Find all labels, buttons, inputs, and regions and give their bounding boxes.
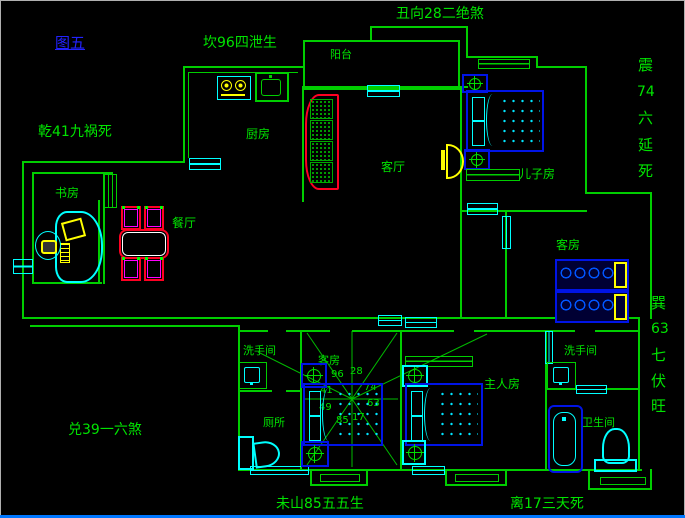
shelf: [466, 169, 520, 181]
wall: [32, 172, 113, 174]
basin: [553, 367, 569, 383]
wall: [286, 330, 302, 332]
wall: [466, 56, 538, 58]
ceiling-fan-icon: [469, 78, 481, 90]
faucet-icon: [269, 75, 272, 78]
annotation-top-left: 坎96四泄生: [203, 36, 277, 50]
room-label-washroom-right: 洗手间: [564, 345, 597, 356]
wall: [22, 161, 185, 163]
pillow: [309, 391, 321, 416]
keyboard-icon: [60, 243, 70, 263]
frame-left: [0, 0, 1, 518]
room-label-sons-room: 儿子房: [519, 168, 555, 180]
louver-door: [103, 174, 117, 208]
mattress: [336, 389, 378, 441]
drain-icon: [562, 417, 566, 421]
pillow: [472, 121, 485, 146]
ceiling-fan-icon: [471, 154, 483, 166]
balcony-outline: [303, 40, 460, 90]
porch-wall: [650, 469, 652, 490]
wall: [587, 192, 652, 194]
window: [405, 317, 437, 328]
blanket-fold: [486, 94, 499, 146]
room-label-living: 客厅: [381, 161, 405, 173]
wall: [460, 86, 462, 212]
floorplan-canvas[interactable]: 图五 坎96四泄生 丑向28二绝煞 乾41九祸死 兑39一六煞 未山85五五生 …: [0, 0, 685, 518]
dining-chair: [144, 206, 164, 230]
wall: [474, 330, 547, 332]
wall: [30, 325, 240, 327]
wall: [183, 66, 304, 68]
wall: [22, 161, 24, 319]
pillow: [411, 416, 423, 441]
pillow: [472, 97, 485, 121]
desk-chair: [35, 231, 61, 260]
annotation-left-upper: 乾41九祸死: [38, 125, 112, 139]
porch-wall: [366, 469, 368, 485]
table-inner: [122, 232, 166, 256]
dining-chair: [121, 257, 141, 281]
window: [502, 216, 511, 249]
wall: [103, 205, 105, 284]
window: [367, 85, 400, 97]
burner-icon: [235, 80, 246, 91]
porch-wall: [505, 469, 507, 485]
ceiling-fan-icon: [408, 369, 422, 383]
ceiling-fan-icon: [307, 369, 321, 383]
room-label-bathroom: 卫生间: [582, 417, 615, 428]
wall: [595, 330, 640, 332]
wall: [22, 317, 640, 319]
wall: [460, 212, 462, 319]
nightstand: [402, 440, 426, 465]
ceiling-fan-icon: [408, 446, 422, 460]
wall: [402, 330, 454, 332]
pillow: [614, 262, 627, 288]
dining-chair: [121, 206, 141, 230]
mattress: [438, 389, 478, 441]
wall: [286, 390, 302, 392]
window: [576, 385, 607, 394]
bed-guest-center: [303, 383, 383, 446]
nightstand: [464, 149, 490, 170]
bathtub: [548, 405, 583, 473]
nightstand: [301, 441, 329, 467]
wall: [650, 192, 652, 319]
bed-guest-right: [555, 259, 629, 291]
wall: [302, 86, 304, 202]
basin: [244, 367, 260, 383]
dining-chair: [144, 257, 164, 281]
window: [467, 203, 498, 215]
wall: [302, 330, 330, 332]
bed-sons-room: [466, 90, 544, 152]
annotation-bottom-right: 离17三天死: [510, 497, 584, 511]
wall: [352, 330, 402, 332]
window: [189, 158, 221, 170]
porch-wall: [310, 484, 368, 486]
plant-rack: [305, 94, 339, 190]
plant-box: [310, 99, 333, 119]
room-label-dining: 餐厅: [172, 217, 196, 229]
porch-wall: [445, 484, 507, 486]
mattress-coils: [559, 263, 615, 283]
toilet-base: [594, 459, 637, 472]
porch-wall: [310, 469, 312, 485]
drain-icon: [559, 382, 562, 385]
chair-seat: [41, 240, 57, 254]
porch-step: [600, 477, 646, 485]
wall: [466, 26, 468, 58]
annotation-left-lower: 兑39一六煞: [68, 423, 142, 437]
washbasin: [547, 362, 576, 389]
wall-lamp-icon: [441, 150, 445, 170]
room-label-kitchen: 厨房: [246, 128, 270, 140]
stove-trim: [221, 94, 245, 96]
wall-niche: [478, 59, 530, 69]
wall: [605, 388, 638, 390]
mattress: [500, 96, 540, 146]
bed-guest-right: [555, 291, 629, 323]
room-label-guest-right: 客房: [556, 239, 580, 251]
porch-wall: [588, 488, 652, 490]
wall: [370, 26, 372, 41]
pillow: [309, 416, 321, 441]
porch-step: [455, 474, 499, 482]
pillow: [411, 391, 423, 416]
wall: [536, 66, 587, 68]
plant-box: [310, 120, 333, 140]
annotation-top-center: 丑向28二绝煞: [396, 7, 484, 21]
dining-table: [119, 229, 169, 259]
window: [13, 259, 33, 274]
porch-wall: [445, 469, 447, 485]
burner-icon: [221, 80, 232, 91]
wall: [585, 66, 587, 194]
figure-label: 图五: [55, 36, 85, 51]
frame-top: [0, 0, 685, 1]
window: [412, 466, 445, 475]
plant-box: [310, 162, 333, 183]
drain-icon: [250, 382, 253, 385]
porch-wall: [588, 469, 590, 490]
blanket-fold: [322, 388, 335, 441]
wall: [183, 66, 185, 163]
wall: [638, 319, 640, 471]
porch-step: [320, 474, 360, 482]
pillow: [614, 294, 627, 320]
wall: [238, 390, 272, 392]
stove: [217, 76, 251, 100]
mattress-coils: [559, 295, 615, 315]
room-label-study: 书房: [55, 187, 79, 199]
wall: [188, 72, 189, 158]
bed-master: [405, 383, 483, 446]
wall: [370, 26, 468, 28]
washbasin: [238, 362, 267, 389]
blanket-fold: [424, 388, 437, 441]
annotation-bottom-left: 未山85五五生: [276, 497, 364, 511]
toilet-tank: [238, 436, 254, 470]
sink-basin: [261, 79, 281, 96]
window: [378, 315, 402, 326]
window: [545, 331, 553, 364]
ceiling-fan-icon: [308, 447, 322, 461]
wall: [238, 330, 268, 332]
plant-box: [310, 141, 333, 161]
kitchen-sink: [255, 72, 289, 102]
